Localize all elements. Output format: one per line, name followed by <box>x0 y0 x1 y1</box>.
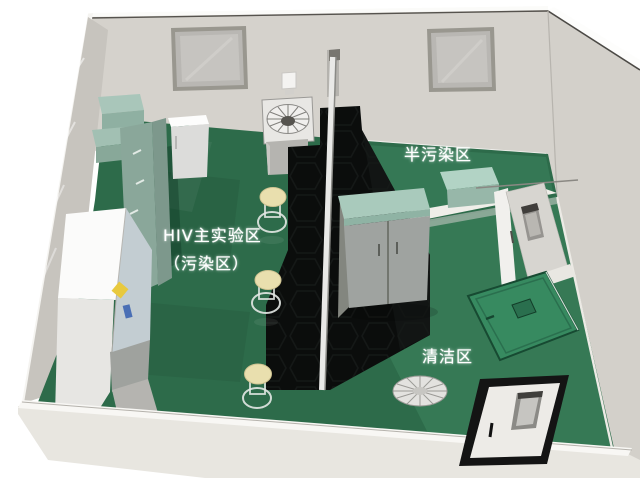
scene-svg <box>0 0 640 479</box>
label-clean-area: 清洁区 <box>422 343 473 367</box>
floor-exhaust-fan <box>393 376 447 406</box>
lab-3d-scene: HIV主实验区 （污染区） 半污染区 清洁区 <box>0 0 640 479</box>
label-contaminated-area: （污染区） <box>164 250 249 274</box>
wall-window-right <box>427 27 496 92</box>
label-semi-contaminated-area: 半污染区 <box>404 141 472 165</box>
label-hiv-main-area: HIV主实验区 <box>163 222 262 246</box>
refrigerator <box>168 115 209 179</box>
wall-window-left <box>171 26 248 91</box>
